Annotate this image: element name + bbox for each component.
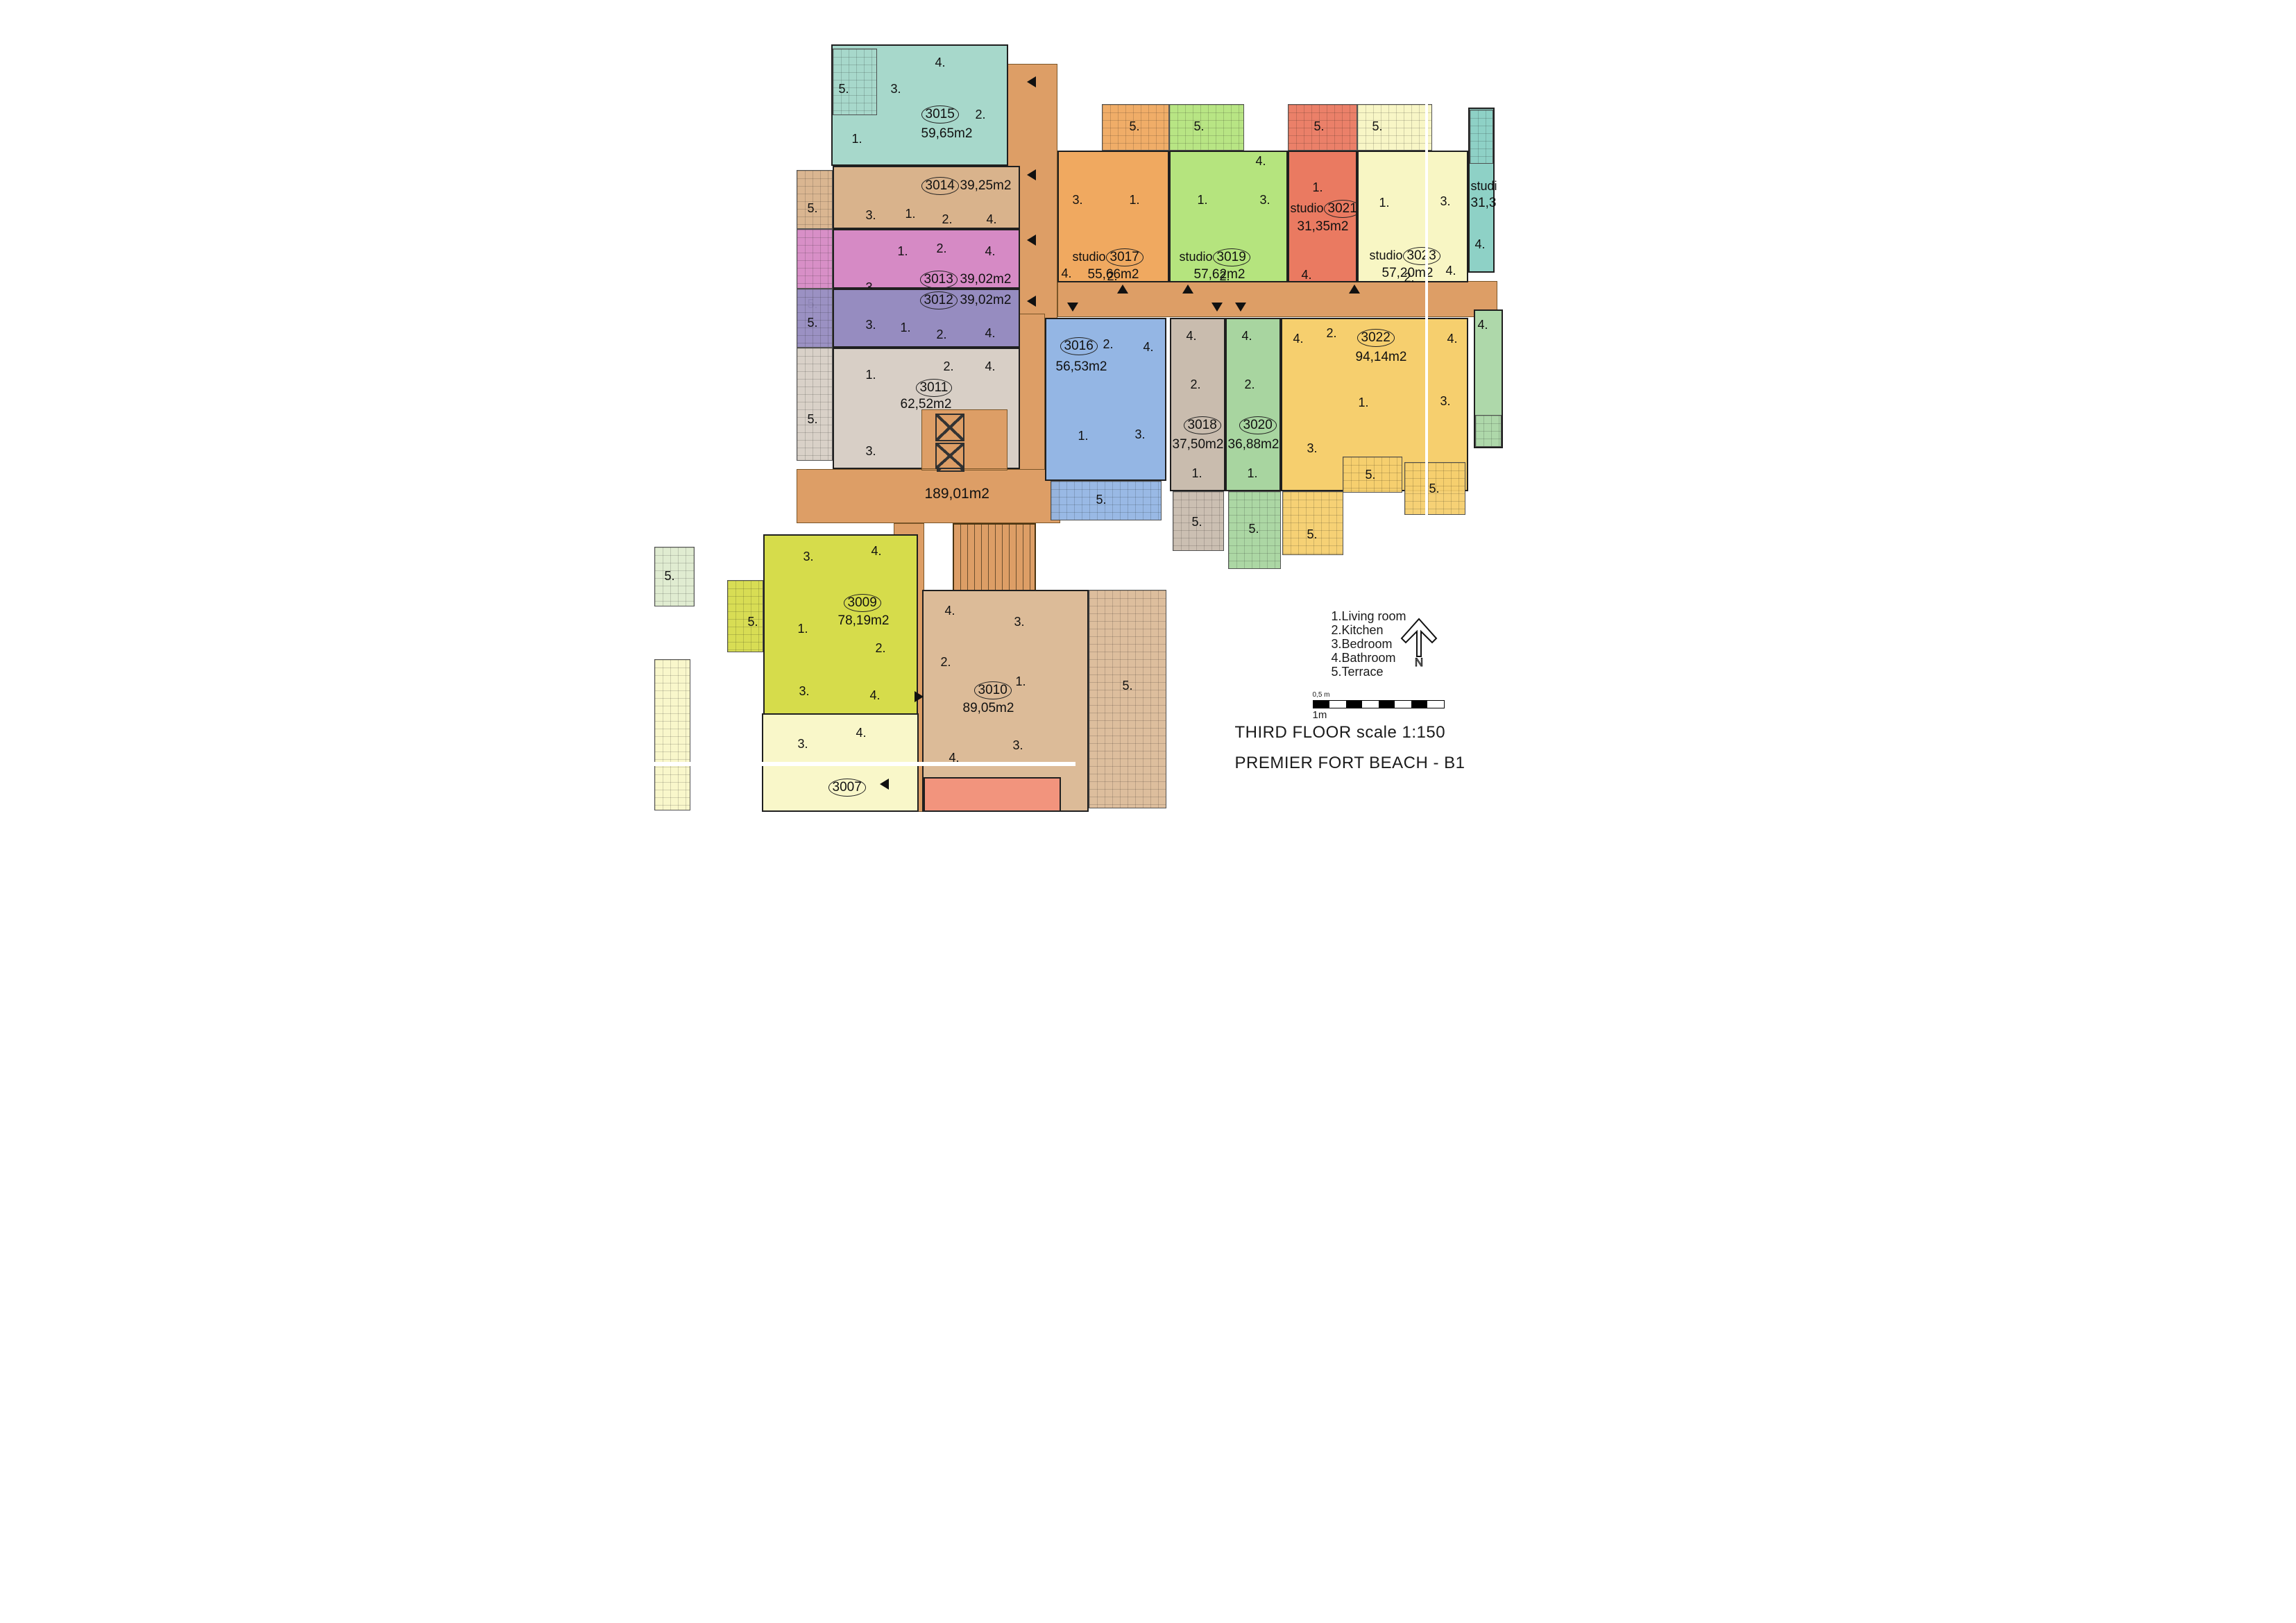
room-label: 3. xyxy=(1440,394,1451,409)
door-marker-icon xyxy=(880,779,889,790)
room-label: 4. xyxy=(987,212,997,227)
room-label: 3. xyxy=(866,318,876,332)
floor-title: THIRD FLOOR scale 1:150 xyxy=(1235,723,1446,742)
room-label: 5. xyxy=(1314,119,1325,134)
door-marker-icon xyxy=(1027,169,1036,180)
room-label: 4. xyxy=(1478,318,1488,332)
scale-bar-graphic xyxy=(1313,700,1445,708)
room-label: 5. xyxy=(748,615,758,629)
page-seam xyxy=(575,762,1075,766)
terrace-3023 xyxy=(1357,104,1432,151)
door-marker-icon xyxy=(1349,284,1360,294)
room-label: 3. xyxy=(866,444,876,459)
room-label: 3. xyxy=(1307,441,1318,456)
room-label: 2. xyxy=(942,212,953,227)
unit-3021-id: studio3021 xyxy=(1291,200,1361,218)
room-label: 3. xyxy=(798,737,808,751)
room-label: 4. xyxy=(985,326,996,341)
room-label: 3. xyxy=(1260,193,1270,207)
room-label: 2. xyxy=(976,108,986,122)
room-label: 3. xyxy=(803,550,814,564)
unit-3009-id: 3009 xyxy=(844,594,881,612)
room-label: 5. xyxy=(1192,515,1202,529)
door-marker-icon xyxy=(1211,303,1223,312)
room-label: 1. xyxy=(1379,196,1390,210)
unit-3021-area: 31,35m2 xyxy=(1298,219,1349,235)
room-label: 4. xyxy=(1062,266,1072,281)
room-label: 3. xyxy=(1073,193,1083,207)
room-label: 1. xyxy=(901,321,911,335)
terrace-3011 xyxy=(797,348,833,461)
unit-3013-id: 3013 xyxy=(920,271,958,289)
unit-3010-id: 3010 xyxy=(974,681,1012,699)
scale-bar: 0,5 m 1m xyxy=(1313,691,1452,721)
room-label: 4. xyxy=(985,244,996,259)
unit-partial-salmon-block xyxy=(924,777,1061,812)
unit-3014-area: 39,25m2 xyxy=(960,178,1012,194)
unit-3012-area: 39,02m2 xyxy=(960,293,1012,308)
unit-3022-area: 94,14m2 xyxy=(1356,350,1407,365)
unit-3007-id: 3007 xyxy=(828,779,866,797)
room-label: 1. xyxy=(852,132,862,146)
unit-3015-area: 59,65m2 xyxy=(921,126,973,142)
door-marker-icon xyxy=(1182,284,1193,294)
room-label: 3. xyxy=(1014,615,1025,629)
room-label: 4. xyxy=(1242,329,1252,343)
unit-3015-id: 3015 xyxy=(921,105,959,124)
scale-bar-bottom-label: 1m xyxy=(1313,709,1452,721)
room-label: 3. xyxy=(866,208,876,223)
room-label: 1. xyxy=(1130,193,1140,207)
room-label: 2. xyxy=(1327,326,1337,341)
elevator-icon xyxy=(935,414,964,441)
room-label: 2. xyxy=(876,641,886,656)
door-marker-icon xyxy=(1027,76,1036,87)
unit-3012-id: 3012 xyxy=(920,291,958,309)
room-label: 2. xyxy=(1245,377,1255,392)
room-label: 4. xyxy=(870,688,881,703)
room-label: 5. xyxy=(808,201,818,216)
floor-plan-canvas: 189,01m2 3015 2. 59,65m2 5. 3. 4. 1. 301… xyxy=(575,0,1722,812)
room-label: 5. xyxy=(665,569,675,584)
door-marker-icon xyxy=(1117,284,1128,294)
unit-partial-area: 31,3 xyxy=(1471,196,1497,211)
room-label: 1. xyxy=(905,207,916,221)
room-label: 4. xyxy=(1446,264,1456,278)
unit-3014-id: 3014 xyxy=(921,177,959,195)
room-label: 4. xyxy=(1256,154,1266,169)
unit-3017-id: studio3017 xyxy=(1073,248,1143,266)
room-label: 2. xyxy=(944,359,954,374)
room-label: 4. xyxy=(1475,237,1486,252)
unit-3018-block xyxy=(1170,318,1225,491)
room-label: 4. xyxy=(1293,332,1304,346)
room-label: 3. xyxy=(1135,427,1146,442)
room-label: 1. xyxy=(1016,674,1026,689)
room-label: 5. xyxy=(1123,679,1133,693)
room-label: 5. xyxy=(839,82,849,96)
room-label: 4. xyxy=(1143,340,1154,355)
room-label: 1. xyxy=(1359,396,1369,410)
unit-3018-area: 37,50m2 xyxy=(1173,437,1224,452)
room-label: 1. xyxy=(866,368,876,382)
room-label: 4. xyxy=(945,604,955,618)
scale-bar-top-label: 0,5 m xyxy=(1313,691,1452,699)
unit-partial-id: studi xyxy=(1471,179,1497,194)
corridor-segment xyxy=(921,409,1007,469)
door-marker-icon xyxy=(1235,303,1246,312)
unit-3016-id: 3016 xyxy=(1060,337,1098,355)
room-label: 3. xyxy=(1013,738,1023,753)
unit-3009-area: 78,19m2 xyxy=(838,613,890,629)
terrace-3007 xyxy=(654,659,690,810)
door-marker-icon xyxy=(1067,303,1078,312)
room-label: 2. xyxy=(1103,337,1114,352)
unit-3023-id: studio3023 xyxy=(1370,247,1440,265)
terrace-3022 xyxy=(1282,491,1343,555)
room-label: 1. xyxy=(1078,429,1089,443)
room-label: 1. xyxy=(898,244,908,259)
room-label: 5. xyxy=(1372,119,1383,134)
room-label: 3. xyxy=(1440,194,1451,209)
room-label: 4. xyxy=(1187,329,1197,343)
room-label: 1. xyxy=(1248,466,1258,481)
unit-3019-area: 57,62m2 xyxy=(1194,267,1245,282)
corridor-area-label: 189,01m2 xyxy=(925,486,989,502)
unit-3010-area: 89,05m2 xyxy=(963,701,1014,716)
terrace-3019 xyxy=(1169,104,1244,151)
room-label: 4. xyxy=(856,726,867,740)
room-label: 4. xyxy=(871,544,882,559)
unit-3020-id: 3020 xyxy=(1239,416,1277,434)
room-label: 5. xyxy=(1249,522,1259,536)
unit-3011-id: 3011 xyxy=(916,379,953,397)
north-arrow-icon: N xyxy=(1395,613,1443,668)
terrace-partial-studio xyxy=(1470,110,1493,164)
door-marker-icon xyxy=(1027,296,1036,307)
unit-3019-id: studio3019 xyxy=(1180,248,1250,266)
room-label: 5. xyxy=(1366,468,1376,482)
room-label: 5. xyxy=(1096,493,1107,507)
room-label: 4. xyxy=(1302,268,1312,282)
room-label: 2. xyxy=(941,655,951,670)
terrace-3014 xyxy=(797,170,833,229)
unit-3013-area: 39,02m2 xyxy=(960,272,1012,287)
room-label: 4. xyxy=(1447,332,1458,346)
north-letter: N xyxy=(1414,656,1422,668)
unit-3016-area: 56,53m2 xyxy=(1056,359,1107,375)
elevator-icon xyxy=(935,443,964,469)
unit-3022-id: 3022 xyxy=(1357,329,1395,347)
room-label: 2. xyxy=(937,328,947,342)
room-label: 5. xyxy=(1194,119,1205,134)
room-label: 5. xyxy=(808,412,818,427)
door-marker-icon xyxy=(1027,235,1036,246)
terrace-partial-green xyxy=(1475,415,1502,447)
room-label: 2. xyxy=(937,241,947,256)
room-label: 3. xyxy=(799,684,810,699)
room-label: 1. xyxy=(1192,466,1202,481)
unit-3018-id: 3018 xyxy=(1184,416,1221,434)
room-label: 5. xyxy=(1429,482,1440,496)
unit-3020-area: 36,88m2 xyxy=(1228,437,1279,452)
staircase xyxy=(953,523,1036,600)
room-label: 1. xyxy=(798,622,808,636)
room-label: 2. xyxy=(1191,377,1201,392)
terrace-3010 xyxy=(1089,590,1166,808)
room-label: 5. xyxy=(1307,527,1318,542)
room-label: 4. xyxy=(935,56,946,70)
room-label: 4. xyxy=(985,359,996,374)
room-label: 5. xyxy=(1130,119,1140,134)
unit-3020-block xyxy=(1225,318,1281,491)
page-seam xyxy=(1425,0,1428,548)
terrace-3013 xyxy=(797,229,833,289)
unit-3011-area: 62,52m2 xyxy=(901,397,952,412)
project-title: PREMIER FORT BEACH - B1 xyxy=(1235,754,1465,773)
unit-3017-area: 55,66m2 xyxy=(1088,267,1139,282)
room-label: 1. xyxy=(1313,180,1323,195)
room-label: 1. xyxy=(1198,193,1208,207)
door-marker-icon xyxy=(915,691,924,702)
room-label: 5. xyxy=(808,316,818,330)
room-label: 3. xyxy=(891,82,901,96)
